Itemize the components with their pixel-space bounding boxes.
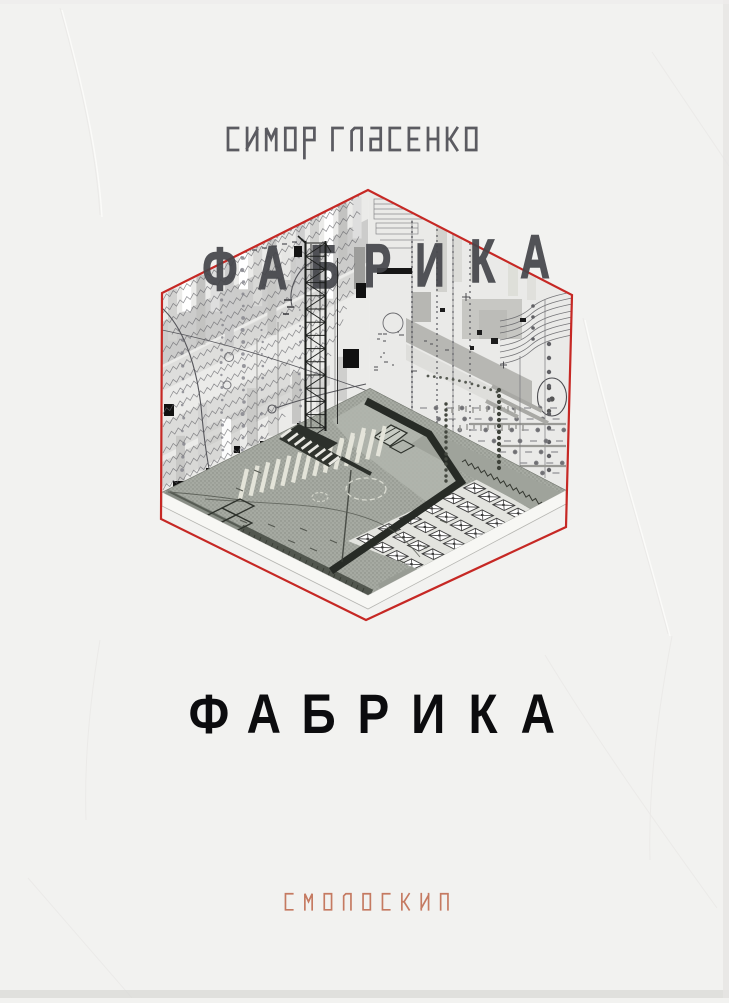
svg-text:Б: Б — [301, 683, 335, 745]
svg-text:К: К — [468, 683, 497, 745]
svg-text:Ф: Ф — [203, 236, 238, 304]
svg-text:А: А — [520, 224, 550, 292]
svg-text:И: И — [411, 683, 445, 745]
svg-text:А: А — [521, 683, 555, 745]
svg-text:Р: Р — [364, 233, 391, 301]
svg-text:А: А — [247, 683, 281, 745]
svg-text:И: И — [415, 232, 444, 300]
svg-text:Ф: Ф — [189, 683, 230, 745]
svg-text:А: А — [258, 235, 288, 303]
svg-text:Р: Р — [358, 683, 390, 745]
svg-text:К: К — [470, 228, 495, 296]
